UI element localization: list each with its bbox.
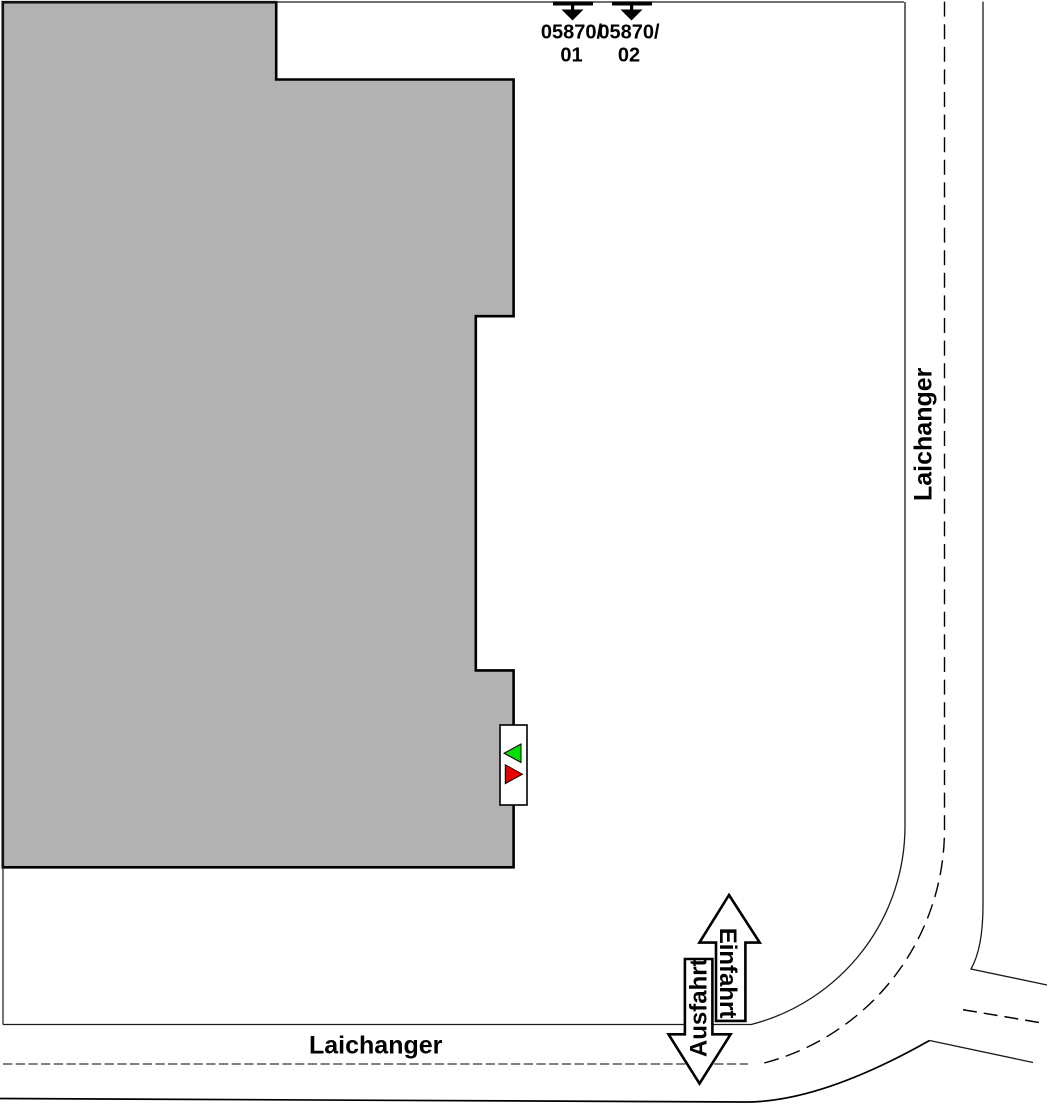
svg-text:02: 02: [618, 44, 640, 66]
svg-text:Ausfahrt: Ausfahrt: [686, 958, 713, 1057]
svg-text:Laichanger: Laichanger: [309, 1031, 443, 1059]
svg-text:05870/: 05870/: [598, 22, 660, 44]
svg-text:01: 01: [560, 44, 582, 66]
svg-text:05870/: 05870/: [541, 22, 603, 44]
svg-text:Einfahrt: Einfahrt: [714, 928, 741, 1019]
svg-text:Laichanger: Laichanger: [910, 367, 938, 501]
